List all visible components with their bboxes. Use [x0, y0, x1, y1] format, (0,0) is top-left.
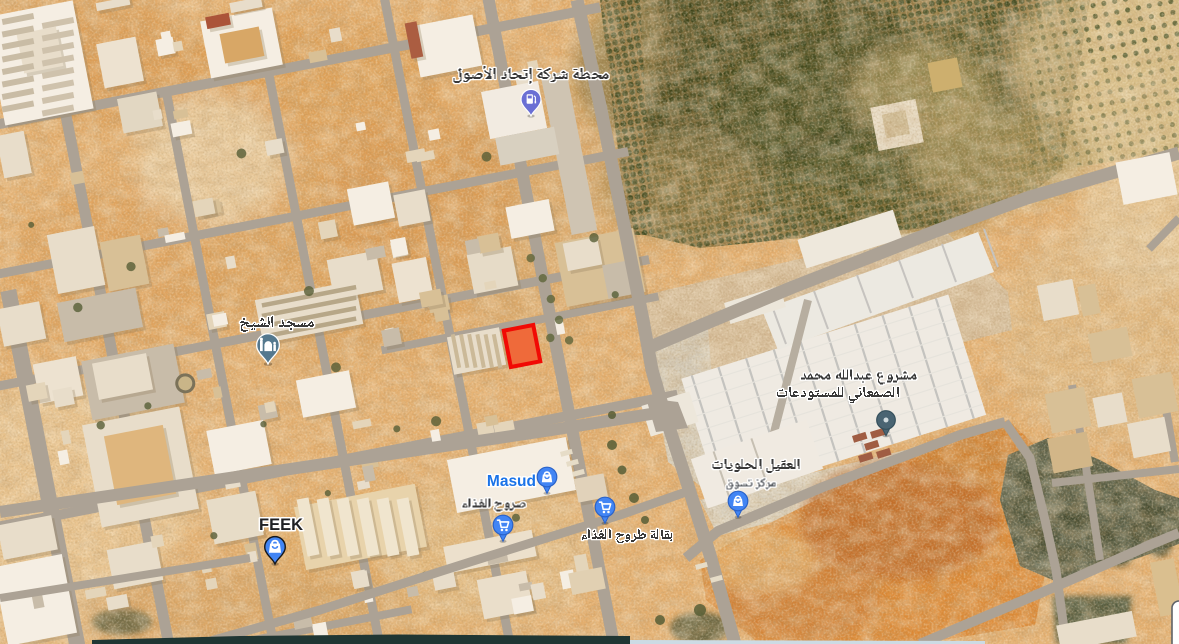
svg-text:Masud: Masud	[487, 473, 536, 490]
svg-text:FEEK: FEEK	[259, 516, 303, 534]
